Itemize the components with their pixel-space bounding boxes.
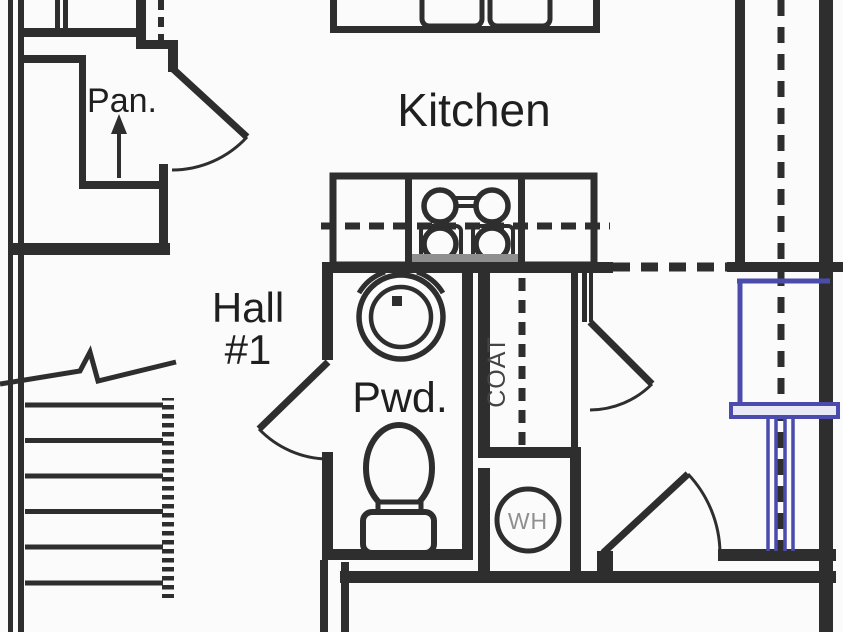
wall-segment — [571, 273, 578, 458]
door-jamb — [597, 551, 613, 573]
wall-segment — [63, 0, 68, 31]
wall-segment — [322, 262, 613, 273]
stove-burner — [424, 190, 456, 222]
hall-label: Hall #1 — [212, 284, 284, 373]
coat-closet: COAT — [478, 273, 593, 458]
counter-edge — [593, 0, 600, 33]
wall-segment — [322, 273, 333, 360]
wall-segment — [570, 458, 581, 573]
wall-segment — [8, 243, 170, 255]
coat-closet-label: COAT — [483, 336, 511, 408]
door-swing-arc — [590, 384, 652, 410]
water-heater-closet: WH — [478, 458, 581, 578]
hall-label-line2: #1 — [225, 326, 272, 373]
kitchen-label: Kitchen — [397, 84, 550, 136]
hall-to-entry-door — [590, 322, 652, 410]
door-jamb — [589, 273, 593, 322]
wall-segment — [136, 0, 146, 44]
door-swing-arc — [688, 474, 720, 553]
blue-shelf-bar — [731, 404, 838, 417]
stove-burner — [476, 190, 508, 222]
range-side-line — [405, 173, 412, 268]
sink-basin-right — [490, 0, 550, 26]
water-heater-label: WH — [508, 508, 548, 534]
counter-edge — [330, 26, 600, 33]
wall-segment — [320, 560, 328, 632]
kitchen-top-counter — [330, 0, 600, 33]
stair-break-line — [0, 352, 176, 384]
pantry-shelf-line — [79, 55, 86, 188]
left-outer-wall — [8, 0, 24, 632]
pantry-door-leaf — [172, 68, 247, 137]
powder-door-swing-arc — [259, 429, 328, 459]
powder-room-label: Pwd. — [352, 374, 448, 422]
wall-segment — [8, 0, 13, 632]
door-jamb — [582, 273, 587, 322]
right-outer-wall — [819, 0, 833, 632]
wall-segment — [18, 0, 24, 632]
wall-segment — [462, 273, 473, 560]
counter-outline — [333, 176, 594, 265]
floor-plan-drawing: Pan. Kitchen Hall #1 — [0, 0, 843, 632]
wall-segment — [159, 164, 168, 245]
toilet-bowl — [366, 425, 432, 511]
floor-plan: Pan. Kitchen Hall #1 — [0, 0, 843, 632]
powder-room: Pwd. — [259, 272, 473, 560]
sink-faucet — [392, 296, 402, 306]
door-leaf — [590, 322, 652, 384]
pantry-label: Pan. — [87, 82, 157, 120]
pantry-shelf-line — [79, 181, 168, 189]
wall-segment — [55, 0, 60, 31]
pantry-room: Pan. — [8, 55, 247, 255]
stair-stringer-hatch — [160, 398, 176, 598]
wall-segment — [819, 0, 833, 632]
toilet-tank — [363, 512, 434, 553]
staircase — [0, 352, 176, 598]
range-side-line — [518, 173, 525, 268]
door-leaf — [603, 474, 688, 553]
hall-label-line1: Hall — [212, 284, 284, 331]
bottom-right-door — [597, 474, 720, 573]
wall-segment — [22, 55, 86, 63]
wall-segment — [22, 28, 146, 37]
wall-segment — [340, 571, 836, 583]
wall-segment — [478, 468, 490, 578]
sink-basin-left — [422, 0, 482, 26]
right-side-walls — [735, 0, 781, 550]
pantry-door-swing-arc — [172, 137, 247, 170]
wall-segment — [735, 0, 745, 268]
kitchen-range-counter — [321, 173, 610, 268]
wall-segment — [322, 452, 333, 560]
wall-segment — [478, 447, 581, 458]
